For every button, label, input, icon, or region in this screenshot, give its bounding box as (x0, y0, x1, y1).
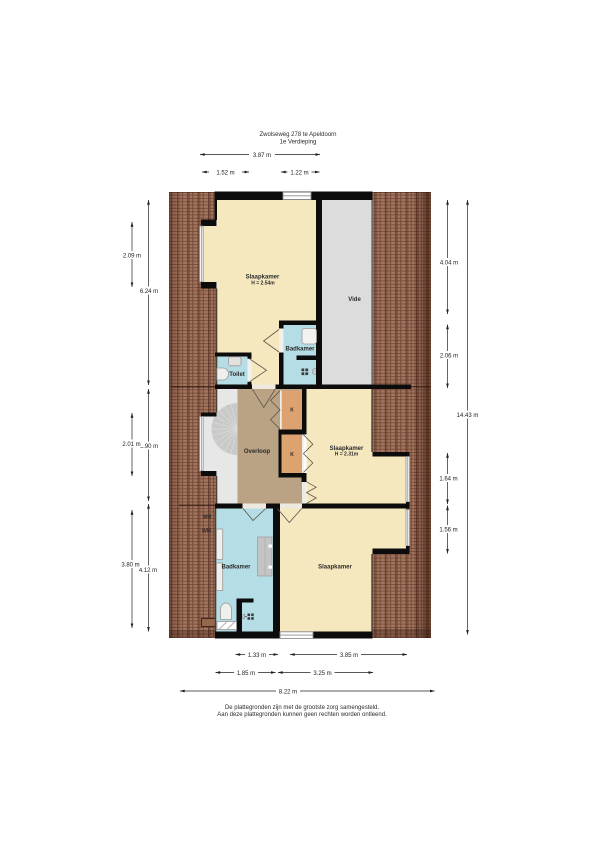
svg-text:Zwolseweg 278 te Apeldoorn: Zwolseweg 278 te Apeldoorn (259, 132, 336, 138)
svg-text:3.85 m: 3.85 m (340, 653, 358, 659)
svg-text:K: K (290, 452, 294, 458)
svg-text:WM: WM (202, 529, 211, 535)
svg-text:2.09 m: 2.09 m (123, 254, 141, 260)
svg-text:3.25 m: 3.25 m (313, 671, 331, 677)
svg-text:Badkamer: Badkamer (221, 565, 251, 571)
svg-text:3.80 m: 3.80 m (121, 563, 139, 569)
svg-text:4.12 m: 4.12 m (139, 568, 157, 574)
svg-text:14.43 m: 14.43 m (457, 413, 479, 419)
svg-text:2.01 m: 2.01 m (122, 442, 140, 448)
svg-text:Aan deze plattegronden kunnen: Aan deze plattegronden kunnen geen recht… (217, 712, 387, 718)
svg-text:6.24 m: 6.24 m (140, 289, 158, 295)
svg-text:1e Verdieping: 1e Verdieping (280, 140, 317, 146)
svg-text:1.56 m: 1.56 m (439, 528, 457, 534)
svg-text:Overloop: Overloop (244, 449, 271, 455)
svg-text:Toilet: Toilet (229, 372, 245, 378)
svg-text:1.33 m: 1.33 m (248, 653, 266, 659)
svg-text:Badkamer: Badkamer (285, 347, 315, 353)
svg-text:De plattegronden zijn met de g: De plattegronden zijn met de grootste zo… (225, 705, 379, 711)
svg-text:1.52 m: 1.52 m (216, 171, 234, 177)
svg-text:Vide: Vide (348, 297, 361, 303)
svg-text:8.22 m: 8.22 m (279, 690, 297, 696)
svg-text:3.87 m: 3.87 m (253, 153, 271, 159)
svg-text:WM: WM (203, 515, 212, 521)
svg-text:1.22 m: 1.22 m (290, 171, 308, 177)
svg-text:Slaapkamer: Slaapkamer (318, 565, 352, 571)
svg-text:1.85 m: 1.85 m (237, 671, 255, 677)
svg-text:1.64 m: 1.64 m (439, 477, 457, 483)
svg-text:K: K (290, 408, 294, 414)
svg-text:4.04 m: 4.04 m (440, 261, 458, 267)
svg-text:2.06 m: 2.06 m (440, 354, 458, 360)
svg-text:H = 2.31m: H = 2.31m (335, 452, 359, 458)
svg-text:H = 2.54m: H = 2.54m (251, 281, 275, 287)
